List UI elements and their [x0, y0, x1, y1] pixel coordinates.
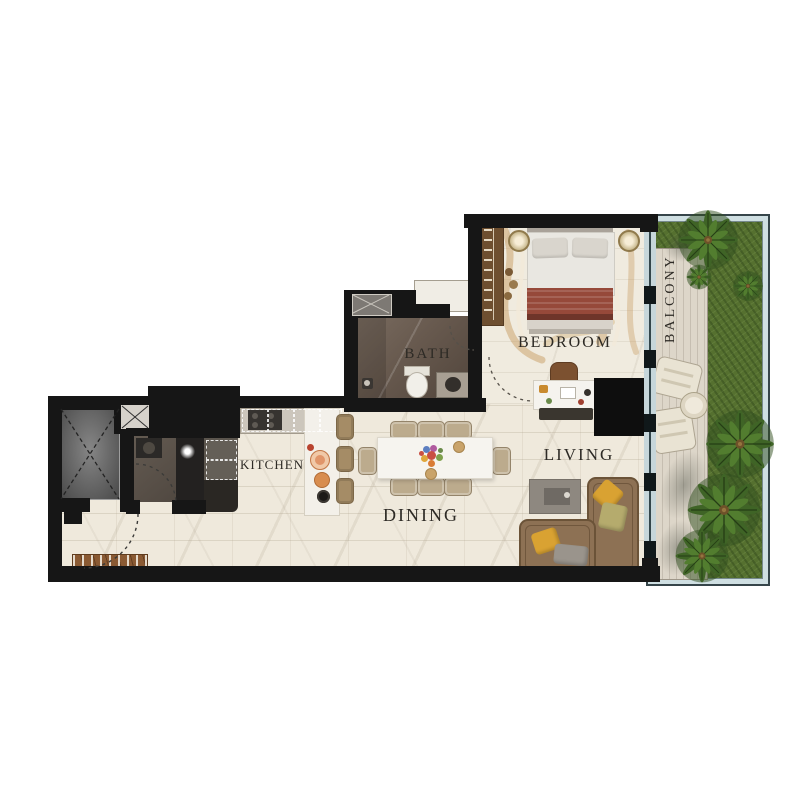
floor-plan: BATH BEDROOM KITCHEN DINING LIVING BALCO…	[0, 0, 800, 800]
food-plate	[314, 472, 330, 488]
console-shelf	[539, 408, 593, 420]
room-label-living: LIVING	[541, 445, 617, 465]
wardrobe-rod	[493, 228, 494, 320]
room-label-dining: DINING	[383, 505, 459, 526]
dining-chair	[492, 447, 511, 475]
window-mullion	[644, 414, 656, 432]
flower-centerpiece	[427, 451, 436, 460]
bedroom-decor	[505, 268, 513, 276]
overhead-cabinet	[268, 409, 294, 432]
living-rug	[529, 479, 581, 514]
coffee-cup	[317, 490, 330, 503]
dining-chair	[390, 477, 418, 496]
food-plate	[310, 450, 330, 470]
wall	[50, 566, 660, 582]
overhead-cabinet	[206, 440, 237, 460]
tv-cabinet-block	[594, 378, 646, 436]
elevator-shaft-floor	[60, 408, 120, 500]
overhead-cabinet	[294, 409, 320, 432]
wc-spotlight	[180, 444, 195, 459]
bedroom-decor	[509, 280, 518, 289]
dining-chair	[358, 447, 377, 475]
desk-item	[560, 387, 576, 399]
room-label-kitchen: KITCHEN	[240, 457, 304, 473]
sofa-throw	[553, 543, 589, 566]
bar-stool	[336, 414, 354, 440]
bed-blanket	[527, 288, 613, 316]
nightstand-lamp	[618, 230, 640, 252]
wall	[172, 500, 206, 514]
wardrobe-hangers	[484, 229, 492, 319]
console-desk	[533, 380, 597, 410]
wall	[408, 304, 450, 318]
small-shaft	[121, 405, 149, 429]
wall	[236, 396, 348, 408]
duct-shaft	[352, 294, 392, 316]
table-decor	[453, 441, 465, 453]
window-glass	[644, 228, 656, 562]
desk-item	[546, 398, 552, 404]
wall	[468, 214, 482, 412]
rug-item	[564, 492, 570, 498]
bar-stool	[336, 446, 354, 472]
desk-item	[539, 385, 548, 393]
overhead-cabinet	[242, 409, 268, 432]
wall	[464, 214, 656, 228]
palm-bush	[684, 262, 714, 292]
desk-item	[578, 399, 584, 405]
wc-sink-bowl	[143, 442, 155, 454]
pillow-olive	[598, 502, 629, 533]
sink-bowl	[445, 377, 461, 392]
shower-head-dot	[364, 380, 370, 386]
room-label-bath: BATH	[396, 346, 460, 363]
window-mullion	[644, 286, 656, 304]
bed	[527, 224, 613, 334]
palm-bush	[730, 268, 766, 304]
wc-sink-counter	[136, 438, 162, 458]
desk-item	[584, 389, 591, 396]
bed-pillow	[532, 237, 569, 258]
toilet-bowl	[406, 372, 428, 398]
table-decor	[425, 468, 437, 480]
wall	[642, 558, 658, 582]
shower-head	[362, 378, 373, 389]
dining-chair	[444, 477, 472, 496]
window-mullion	[644, 350, 656, 368]
wall	[48, 396, 62, 582]
vanity-sink	[436, 372, 470, 398]
wall	[126, 500, 140, 514]
bedroom-decor	[504, 292, 512, 300]
entry-door-jamb	[64, 508, 82, 524]
wall	[640, 214, 658, 232]
room-label-bedroom: BEDROOM	[518, 334, 610, 352]
nightstand-lamp	[508, 230, 530, 252]
food-item	[307, 444, 314, 451]
overhead-cabinet	[206, 460, 237, 480]
bed-pillow	[572, 237, 609, 258]
wall	[344, 398, 486, 412]
bar-stool	[336, 478, 354, 504]
kitchen-base-unit	[204, 480, 238, 512]
window-mullion	[644, 541, 656, 559]
window-mullion	[644, 473, 656, 491]
palm-tree	[670, 524, 734, 588]
wall	[148, 386, 240, 438]
wall	[126, 428, 154, 436]
